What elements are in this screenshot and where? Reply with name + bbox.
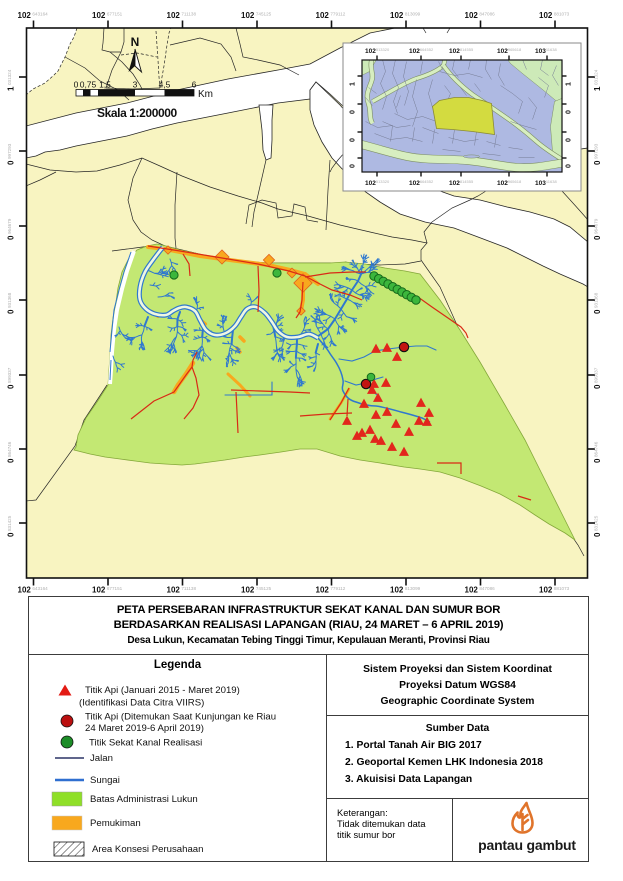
svg-text:24 Maret 2019-6 April 2019): 24 Maret 2019-6 April 2019) [85, 723, 204, 734]
svg-text:102813099: 102813099 [390, 11, 421, 20]
svg-text:Skala 1:200000: Skala 1:200000 [97, 106, 178, 120]
svg-text:102745125: 102745125 [241, 11, 272, 20]
svg-text:0: 0 [566, 110, 573, 114]
svg-text:0964679: 0964679 [7, 218, 16, 240]
svg-text:102745125: 102745125 [241, 586, 272, 595]
svg-text:(Identifikasi Data Citra VIIRS: (Identifikasi Data Citra VIIRS) [79, 698, 204, 709]
svg-text:102881073: 102881073 [539, 586, 570, 595]
svg-text:3: 3 [133, 80, 138, 90]
svg-text:0: 0 [566, 138, 573, 142]
svg-text:1: 1 [350, 82, 357, 86]
svg-text:0997293: 0997293 [593, 143, 602, 165]
svg-text:0899337: 0899337 [593, 367, 602, 389]
svg-text:6: 6 [192, 80, 197, 90]
svg-text:1: 1 [566, 82, 573, 86]
svg-text:Km: Km [198, 89, 213, 100]
svg-text:N: N [131, 35, 140, 49]
svg-text:0931368: 0931368 [593, 292, 602, 314]
svg-text:pantau gambut: pantau gambut [478, 837, 576, 853]
svg-text:102881073: 102881073 [539, 11, 570, 20]
svg-text:1031324: 1031324 [593, 69, 602, 91]
svg-text:0831425: 0831425 [593, 515, 602, 537]
svg-text:102711138: 102711138 [167, 586, 197, 595]
svg-text:0964679: 0964679 [593, 218, 602, 240]
svg-text:102847086: 102847086 [465, 11, 496, 20]
svg-text:4,5: 4,5 [159, 80, 171, 90]
svg-text:0,75: 0,75 [80, 80, 97, 90]
svg-text:Pemukiman: Pemukiman [90, 818, 141, 829]
svg-text:102711138: 102711138 [167, 11, 197, 20]
svg-text:102779112: 102779112 [316, 586, 346, 595]
svg-text:0899337: 0899337 [7, 367, 16, 389]
svg-text:Batas Administrasi Lukun: Batas Administrasi Lukun [90, 794, 198, 805]
svg-text:Jalan: Jalan [90, 753, 113, 764]
svg-text:0864746: 0864746 [593, 441, 602, 463]
svg-text:102677151: 102677151 [92, 11, 123, 20]
svg-text:0931368: 0931368 [7, 292, 16, 314]
svg-text:0: 0 [74, 80, 79, 90]
svg-text:Titik Sekat Kanal Realisasi: Titik Sekat Kanal Realisasi [89, 738, 202, 749]
svg-text:102643164: 102643164 [18, 11, 49, 20]
svg-text:Titik Api (Januari 2015 - Mare: Titik Api (Januari 2015 - Maret 2019) [85, 685, 240, 696]
svg-text:Sungai: Sungai [90, 775, 120, 786]
svg-text:0: 0 [350, 110, 357, 114]
svg-text:0: 0 [566, 164, 573, 168]
svg-text:Titik Api (Ditemukan Saat Kunj: Titik Api (Ditemukan Saat Kunjungan ke R… [85, 712, 276, 723]
svg-text:Area Konsesi Perusahaan: Area Konsesi Perusahaan [92, 844, 203, 855]
svg-text:1031324: 1031324 [7, 69, 16, 91]
svg-text:1,5: 1,5 [99, 80, 111, 90]
svg-text:102813099: 102813099 [390, 586, 421, 595]
svg-text:102643164: 102643164 [18, 586, 49, 595]
svg-text:102779112: 102779112 [316, 11, 346, 20]
svg-text:0: 0 [350, 164, 357, 168]
svg-text:102677151: 102677151 [92, 586, 123, 595]
svg-text:0: 0 [350, 138, 357, 142]
svg-text:0997293: 0997293 [7, 143, 16, 165]
svg-text:0831425: 0831425 [7, 515, 16, 537]
svg-text:102847086: 102847086 [465, 586, 496, 595]
svg-text:0864746: 0864746 [7, 441, 16, 463]
